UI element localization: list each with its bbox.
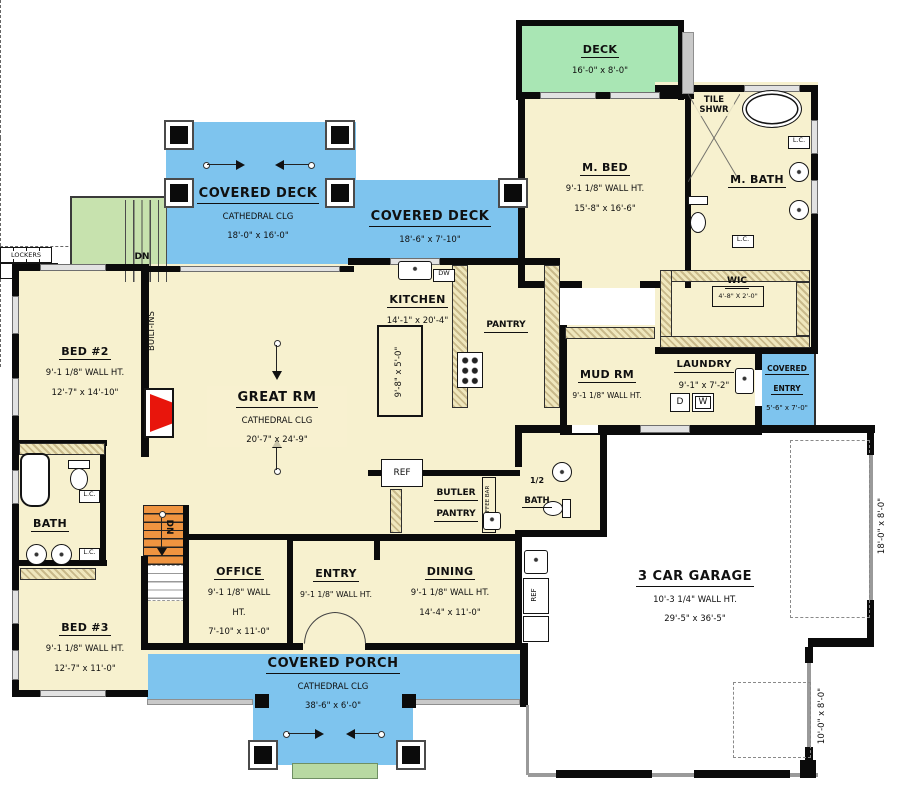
butler-line2: PANTRY <box>434 509 477 522</box>
stair-arrow-line <box>161 518 162 550</box>
bed2-label: BED #2 9'-1 1/8" WALL HT. 12'-7" x 14'-1… <box>25 340 145 399</box>
wall <box>515 537 522 650</box>
dishwasher: DW <box>433 269 455 282</box>
covered-entry-dims: 5'-6" x 7'-0" <box>766 404 808 412</box>
deck-name: DECK <box>581 43 619 58</box>
covered-porch-name: COVERED PORCH <box>266 656 401 674</box>
porch-post <box>250 742 276 768</box>
bath-tub <box>20 453 50 507</box>
half-bath-label: 1/2 BATH <box>516 468 558 508</box>
entry-label: ENTRY 9'-1 1/8" WALL HT. <box>293 562 379 602</box>
wall <box>800 760 816 778</box>
window <box>40 690 106 697</box>
lc-label: L.C. <box>83 548 95 556</box>
wall <box>287 534 522 541</box>
wic-island-dims: 4'-8" X 2'-0" <box>718 293 757 301</box>
built-ins-label: BUILT-INS <box>147 302 157 360</box>
kitchen-dims: 14'-1" x 20'-4" <box>387 316 449 326</box>
pantry-label: PANTRY <box>471 312 541 333</box>
deck-steps <box>682 32 694 94</box>
kitchen-name: KITCHEN <box>387 293 447 308</box>
tile-shwr-line1: TILE <box>704 95 724 105</box>
bath-closet <box>20 568 96 580</box>
covered-porch-center-area <box>253 705 413 765</box>
bed3-label: BED #3 9'-1 1/8" WALL HT. 12'-7" x 11'-0… <box>25 616 145 675</box>
arrow-head-left <box>270 160 284 170</box>
wall <box>515 425 875 433</box>
interior-stair-dn-label: DN <box>163 516 174 538</box>
great-rm-dims: 20'-7" x 24'-9" <box>246 435 308 445</box>
mbed-label: M. BED 9'-1 1/8" WALL HT. 15'-8" x 16'-6… <box>540 156 670 215</box>
bath-name: BATH <box>31 517 69 532</box>
covered-deck-main-clg: CATHEDRAL CLG <box>223 212 294 222</box>
wall <box>600 433 607 533</box>
garage-label: 3 CAR GARAGE 10'-3 1/4" WALL HT. 29'-5" … <box>620 565 770 626</box>
mud-bench <box>565 327 655 339</box>
office-label: OFFICE 9'-1 1/8" WALL HT. 7'-10" x 11'-0… <box>203 560 275 639</box>
window <box>811 120 818 154</box>
washer-label: W <box>699 397 708 408</box>
mud-rm-name: MUD RM <box>578 368 636 383</box>
bath-sink <box>26 544 47 565</box>
door-gap-entry <box>303 643 365 650</box>
wall <box>515 530 607 537</box>
deck-label: DECK 16'-0" x 8'-0" <box>550 38 650 78</box>
garage-wallht: 10'-3 1/4" WALL HT. <box>653 595 737 605</box>
deck-dims: 16'-0" x 8'-0" <box>572 66 628 76</box>
garage-name: 3 CAR GARAGE <box>636 569 754 587</box>
mbath-sink <box>789 200 809 220</box>
porch-post <box>398 742 424 768</box>
wall <box>100 440 106 566</box>
office-name: OFFICE <box>214 565 264 580</box>
covered-deck-side-label: COVERED DECK 18'-6" x 7'-10" <box>355 205 505 246</box>
butler-line1: BUTLER <box>434 488 477 501</box>
covered-entry-line1: COVERED <box>765 364 809 375</box>
covered-deck-main-name: COVERED DECK <box>197 186 320 204</box>
porch-sill <box>414 699 520 705</box>
tile-shwr-line2: SHWR <box>699 105 728 115</box>
wic-wall <box>660 336 810 348</box>
ref-label: REF <box>393 468 410 479</box>
wic-label: WIC <box>707 268 767 289</box>
linen-closet: L.C. <box>79 548 100 561</box>
arrow-head-down <box>272 371 282 385</box>
laundry-label: LAUNDRY 9'-1" x 7'-2" <box>660 352 748 393</box>
dining-label: DINING 9'-1 1/8" WALL HT. 14'-4" x 11'-0… <box>398 560 502 619</box>
half-bath-line2: BATH <box>522 496 551 508</box>
garage-door-18-dims: 18'-0" x 8'-0" <box>877 486 887 566</box>
mud-rm-wallht: 9'-1 1/8" WALL HT. <box>572 391 641 400</box>
window <box>12 590 19 624</box>
kitchen-sink <box>398 261 432 280</box>
dining-dims: 14'-4" x 11'-0" <box>419 608 481 618</box>
covered-porch-label: COVERED PORCH CATHEDRAL CLG 38'-6" x 6'-… <box>258 652 408 713</box>
butler-pantry-label: BUTLER PANTRY <box>418 480 494 522</box>
covered-deck-side-dims: 18'-6" x 7'-10" <box>399 235 461 245</box>
bed2-name: BED #2 <box>59 345 111 360</box>
butler-cabinet <box>390 489 402 533</box>
bed2-wallht: 9'-1 1/8" WALL HT. <box>46 368 124 378</box>
window <box>811 180 818 214</box>
covered-deck-main-dims: 18'-0" x 16'-0" <box>227 231 289 241</box>
window <box>540 92 596 99</box>
floor-plan: DN DN <box>0 0 898 800</box>
wall <box>805 647 813 663</box>
garage-dims: 29'-5" x 36'-5" <box>664 614 726 624</box>
garage-ref-label: REF <box>530 580 539 610</box>
butler-ref: REF <box>381 459 423 487</box>
mbath-toilet-tank <box>688 196 708 205</box>
wall <box>374 534 380 560</box>
great-rm-label: GREAT RM CATHEDRAL CLG 20'-7" x 24'-9" <box>207 386 347 447</box>
covered-porch-clg: CATHEDRAL CLG <box>298 682 369 692</box>
window <box>12 296 19 334</box>
mud-rm-label: MUD RM 9'-1 1/8" WALL HT. <box>562 363 652 403</box>
dryer-label: D <box>677 397 684 408</box>
porch-step <box>292 763 378 779</box>
wall <box>694 770 790 778</box>
window <box>12 650 19 680</box>
laundry-name: LAUNDRY <box>674 359 733 373</box>
covered-deck-side-name: COVERED DECK <box>369 209 492 227</box>
linen-closet: L.C. <box>788 136 810 149</box>
dining-wallht: 9'-1 1/8" WALL HT. <box>411 588 489 598</box>
entry-name: ENTRY <box>313 567 359 582</box>
wall <box>515 433 522 467</box>
dryer: D <box>670 393 690 412</box>
bed3-name: BED #3 <box>59 621 111 636</box>
wall <box>516 20 684 26</box>
mbath-tub <box>742 90 802 128</box>
mbed-dims: 15'-8" x 16'-6" <box>574 204 636 214</box>
covered-entry-line2: ENTRY <box>771 384 802 395</box>
covered-entry-label: COVERED ENTRY 5'-6" x 7'-0" <box>759 356 815 415</box>
mbed-wallht: 9'-1 1/8" WALL HT. <box>566 184 644 194</box>
exterior-stair-dn-label: DN <box>130 252 154 263</box>
washer: W <box>692 393 714 412</box>
great-rm-name: GREAT RM <box>236 390 319 408</box>
arrow-line <box>288 733 318 734</box>
garage-door-10-path <box>733 682 811 758</box>
island-dims: 9'-8" x 5'-0" <box>394 338 404 406</box>
lc-label: L.C. <box>83 490 95 498</box>
covered-porch-dims: 38'-6" x 6'-0" <box>305 701 361 711</box>
wall <box>516 20 522 100</box>
wic-name: WIC <box>725 276 749 289</box>
garage-wall-west <box>526 705 529 775</box>
covered-deck-main-label: COVERED DECK CATHEDRAL CLG 18'-0" x 16'-… <box>183 182 333 243</box>
wall <box>183 505 189 645</box>
deck-post <box>327 122 353 148</box>
bath-label: BATH <box>20 512 80 532</box>
office-dims: 7'-10" x 11'-0" <box>208 627 270 637</box>
garage-door-10-dims: 10'-0" x 8'-0" <box>817 680 827 752</box>
arrow-head-right <box>315 729 329 739</box>
pantry-wall <box>544 265 560 408</box>
mbath-name: M. BATH <box>728 173 786 188</box>
lc-label: L.C. <box>737 235 749 243</box>
wall <box>348 258 560 265</box>
porch-sill <box>147 699 253 705</box>
lc-label: L.C. <box>793 136 805 144</box>
wall <box>640 281 660 288</box>
bath-toilet-tank <box>68 460 90 469</box>
wall <box>808 638 874 647</box>
mbed-name: M. BED <box>580 161 630 176</box>
sliding-door <box>180 266 340 272</box>
kitchen-label: KITCHEN 14'-1" x 20'-4" <box>365 288 470 328</box>
garage-door-18-path <box>790 440 870 618</box>
window <box>12 470 19 504</box>
linen-closet: L.C. <box>79 490 100 503</box>
laundry-dims: 9'-1" x 7'-2" <box>679 381 730 391</box>
lockers: LOCKERS <box>0 247 52 263</box>
great-rm-clg: CATHEDRAL CLG <box>242 416 313 426</box>
window <box>12 378 19 416</box>
wall <box>183 534 293 540</box>
tile-shwr-label: TILE SHWR <box>694 95 734 116</box>
garage-cabinet <box>523 616 549 642</box>
wall <box>520 643 528 707</box>
range <box>457 352 483 388</box>
bed3-dims: 12'-7" x 11'-0" <box>54 664 116 674</box>
bed3-wallht: 9'-1 1/8" WALL HT. <box>46 644 124 654</box>
deck-post <box>166 122 192 148</box>
stair-arrow-dot <box>159 511 166 518</box>
arrow-dot <box>308 162 315 169</box>
half-bath-line1: 1/2 <box>530 476 544 485</box>
arrow-line <box>207 164 239 165</box>
dining-name: DINING <box>425 565 476 580</box>
bath-toilet-bowl <box>70 468 88 490</box>
mbath-label: M. BATH <box>712 168 802 188</box>
arrow-head-left <box>341 729 355 739</box>
arrow-line <box>276 345 277 373</box>
arrow-head-right <box>236 160 250 170</box>
stair-arrow-head <box>157 548 167 561</box>
pantry-name: PANTRY <box>484 320 527 333</box>
arrow-dot <box>378 731 385 738</box>
dw-label: DW <box>438 269 449 277</box>
garage-sink <box>524 550 548 574</box>
window <box>640 425 690 433</box>
window <box>40 264 106 271</box>
deck-post <box>500 180 526 206</box>
window <box>610 92 660 99</box>
mbath-toilet-bowl <box>690 212 706 233</box>
entry-wallht: 9'-1 1/8" WALL HT. <box>300 590 372 599</box>
wic-wall <box>796 282 810 336</box>
lockers-label: LOCKERS <box>10 251 42 259</box>
office-wallht: 9'-1 1/8" WALL HT. <box>208 588 270 618</box>
wic-island: 4'-8" X 2'-0" <box>712 286 764 307</box>
bath-sink <box>51 544 72 565</box>
wall <box>556 770 652 778</box>
halfbath-toilet-tank <box>562 499 571 518</box>
door-gap-mud-garage <box>572 425 598 433</box>
bed2-dims: 12'-7" x 14'-10" <box>52 388 119 398</box>
linen-closet: L.C. <box>732 235 754 248</box>
